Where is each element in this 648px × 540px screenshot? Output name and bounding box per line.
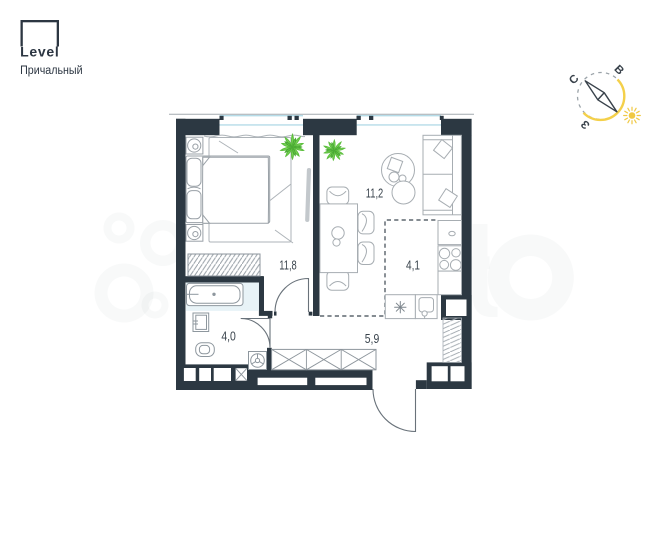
svg-text:11,2: 11,2 xyxy=(366,186,384,201)
svg-text:Причальный: Причальный xyxy=(20,65,83,77)
svg-text:4,1: 4,1 xyxy=(406,258,420,273)
svg-text:4,0: 4,0 xyxy=(221,329,236,344)
svg-text:Level: Level xyxy=(20,44,59,60)
svg-text:5,9: 5,9 xyxy=(365,331,380,346)
svg-text:11,8: 11,8 xyxy=(279,258,297,273)
